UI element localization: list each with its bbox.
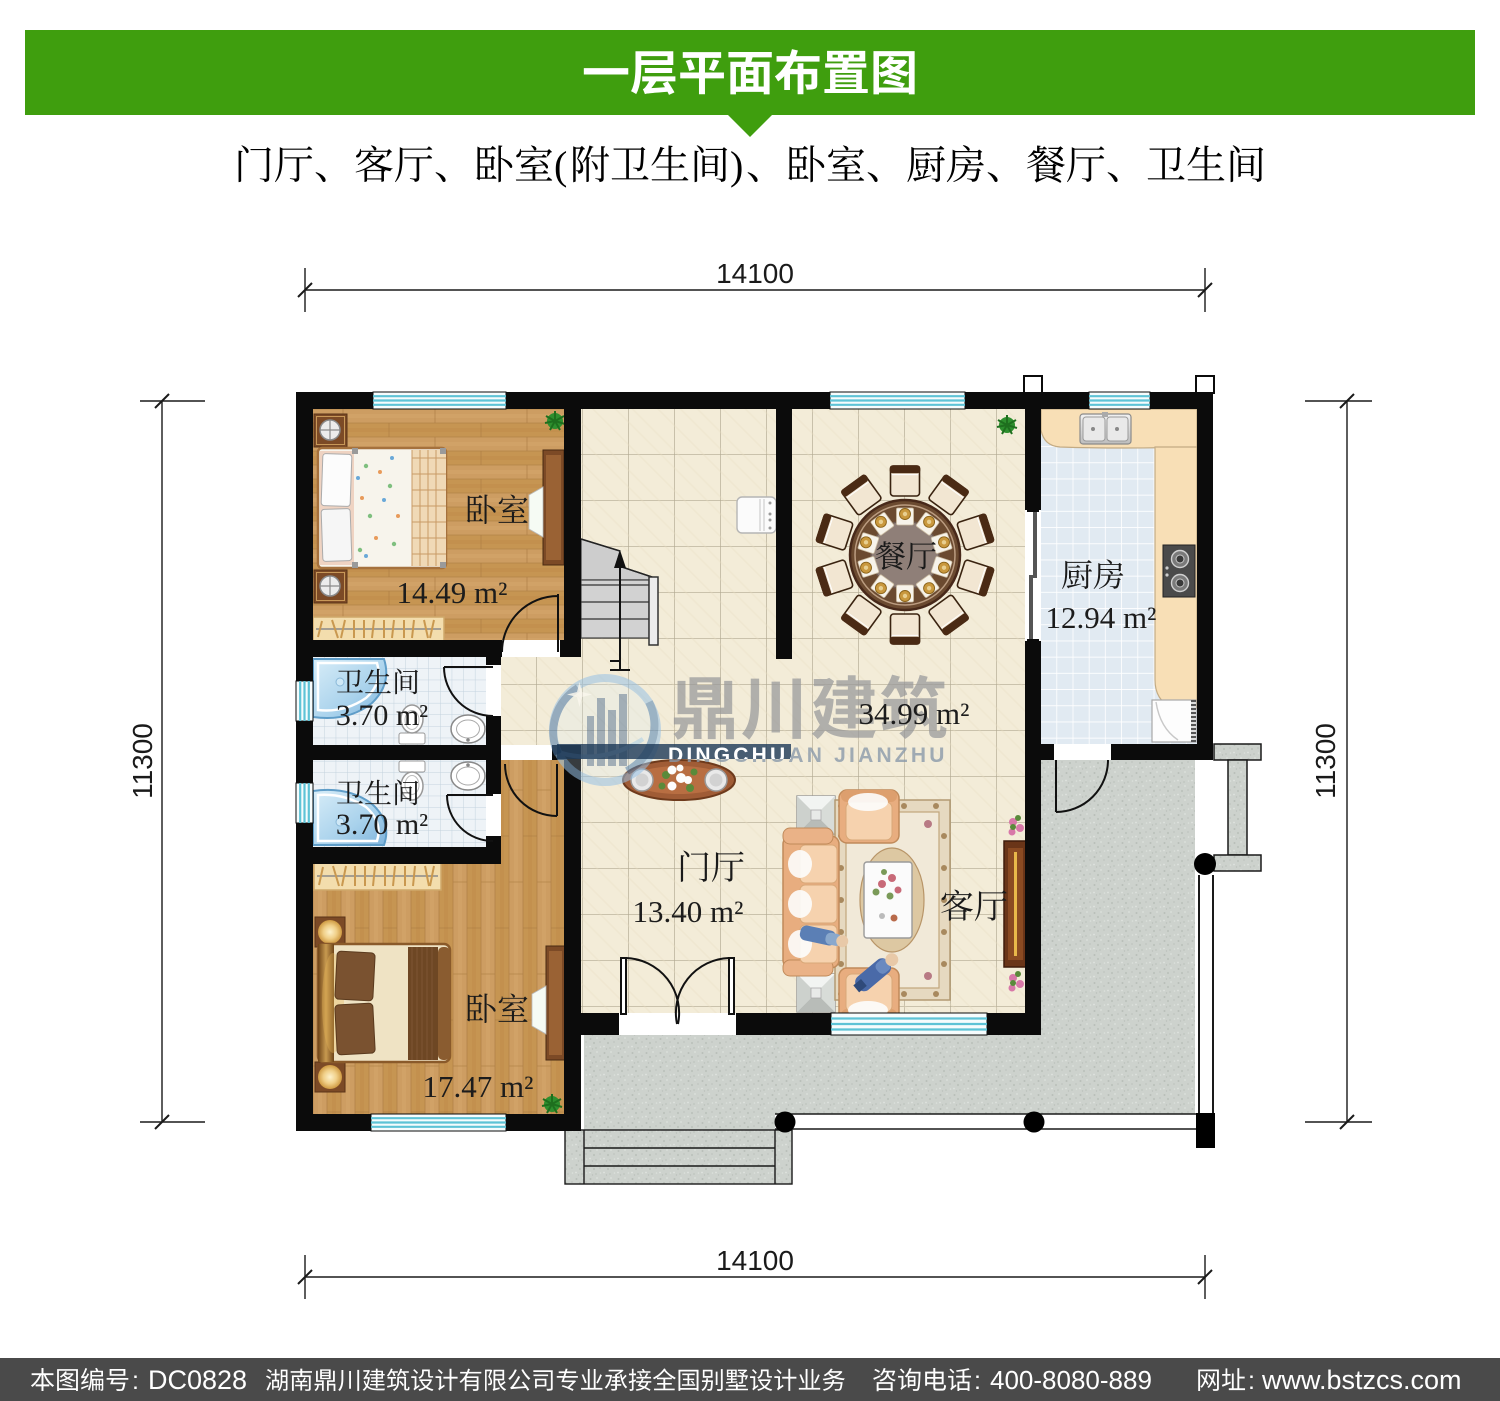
svg-text:(: ( <box>554 143 567 188</box>
svg-text::: : <box>132 1367 139 1395</box>
svg-text:14.49 m²: 14.49 m² <box>397 575 508 610</box>
svg-text:3.70 m²: 3.70 m² <box>336 808 428 841</box>
svg-text:DC0828: DC0828 <box>148 1365 247 1395</box>
svg-text:400-8080-889: 400-8080-889 <box>990 1365 1152 1395</box>
svg-text::: : <box>974 1367 981 1395</box>
svg-text:): ) <box>730 143 743 188</box>
svg-text:14100: 14100 <box>716 258 794 289</box>
svg-text:34.99 m²: 34.99 m² <box>859 696 970 731</box>
svg-text:13.40 m²: 13.40 m² <box>633 894 744 929</box>
svg-text:11300: 11300 <box>127 723 158 799</box>
svg-text:www.bstzcs.com: www.bstzcs.com <box>1261 1365 1462 1395</box>
svg-text:12.94 m²: 12.94 m² <box>1046 600 1157 635</box>
svg-text:14100: 14100 <box>716 1245 794 1276</box>
svg-text::: : <box>1248 1367 1255 1395</box>
svg-text:11300: 11300 <box>1310 723 1341 799</box>
svg-text:3.70 m²: 3.70 m² <box>336 699 428 732</box>
svg-text:17.47 m²: 17.47 m² <box>423 1069 534 1104</box>
